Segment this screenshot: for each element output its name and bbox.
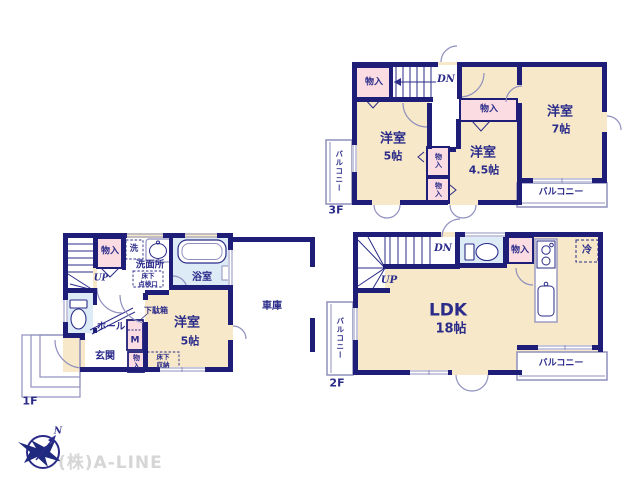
floor3-room7-name: 洋室 [547, 106, 573, 119]
company-name: (株)A-LINE [58, 448, 163, 473]
floor3-room45-name: 洋室 [470, 147, 496, 160]
floor3-closet-v1-label: 物入 [435, 153, 442, 169]
floor1-entrance-label: 玄関 [95, 352, 115, 362]
floor3-room5-name: 洋室 [380, 133, 406, 146]
floor1-room5-name: 洋室 [174, 317, 200, 330]
floor2-stairs-dn-label: DN [434, 244, 452, 254]
floor1-room5-size: 5帖 [181, 336, 200, 347]
floor2-label: 2F [329, 378, 344, 389]
floor2-balcony-bottom-label: バルコニー [539, 360, 584, 369]
floor3-closet-v2-label: 物入 [435, 182, 442, 198]
floor1-hatch-line1: 床下 [142, 273, 155, 280]
floor3-label: 3F [328, 205, 343, 216]
floor3-room45-size: 4.5帖 [469, 165, 500, 176]
floor2-balcony-left-label: バルコニー [336, 317, 344, 360]
floor1-garage-label: 車庫 [262, 302, 282, 312]
floor3-room5-size: 5帖 [384, 151, 403, 162]
floor3-room7-size: 7帖 [552, 124, 571, 135]
toilet-icon-2f [465, 244, 498, 261]
floor1-storage-line1: 床下 [157, 354, 170, 361]
floor1-hatch-line2: 点検口 [138, 281, 158, 288]
kitchen-counter-icon [535, 239, 557, 322]
floor2-ldk-name: LDK [429, 303, 467, 320]
floor1-bath-label: 浴室 [192, 273, 212, 283]
floor2-fridge-label: 冷 [582, 246, 592, 256]
floor1-plan [22, 233, 315, 397]
floor1-closet-top-label: 物入 [101, 248, 119, 257]
floorplan-canvas: 3F 物入 DN 洋室 5帖 物入 洋室 4.5帖 物入 物入 洋室 7帖 バル… [0, 0, 640, 480]
floor2-stairs-up-label: UP [381, 276, 397, 286]
floor1-meter-label: M [131, 337, 140, 346]
floor3-balcony-left-label: バルコニー [335, 150, 343, 193]
floor1-storage-line2: 収納 [157, 362, 170, 369]
kitchen-sink-icon [538, 282, 554, 316]
floor3-closet-mid-label: 物入 [480, 106, 498, 115]
floor2-ldk-size: 18帖 [435, 323, 466, 336]
floor1-shoe-cabinet-label: 下駄箱 [144, 307, 168, 315]
floor1-closet-bottom-label: 物入 [133, 354, 140, 370]
floorplan-drawing [0, 0, 640, 480]
floor1-laundry-label: 洗 [130, 245, 139, 254]
stove-icon [537, 241, 555, 268]
floor1-label: 1F [22, 396, 37, 407]
floor2-closet-label: 物入 [511, 247, 529, 256]
floor1-hall-label: ホール [97, 322, 126, 332]
floor1-washroom-label: 洗面所 [136, 260, 165, 270]
floor3-stairs-dn-label: DN [437, 75, 455, 85]
floor3-balcony-bottom-label: バルコニー [539, 189, 584, 198]
floor1-stairs-up-label: UP [94, 275, 109, 284]
floor3-closet-top-label: 物入 [365, 79, 383, 88]
compass-icon [18, 435, 62, 468]
toilet-icon-1f [70, 300, 87, 329]
compass-north-label: N [54, 428, 62, 437]
